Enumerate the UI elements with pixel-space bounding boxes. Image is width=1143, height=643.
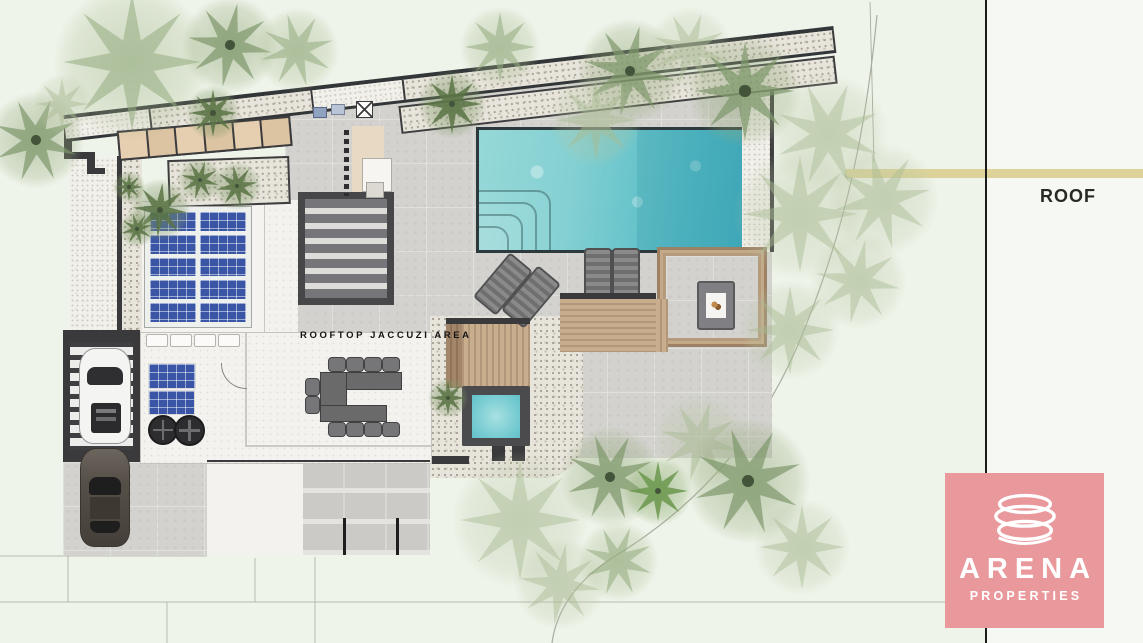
terrace-post bbox=[343, 518, 346, 555]
car-rear-window bbox=[91, 403, 121, 433]
car-roof bbox=[90, 497, 120, 519]
dining-chair bbox=[364, 357, 382, 372]
pergola-frame bbox=[657, 247, 767, 347]
wood-deck-side bbox=[656, 299, 668, 352]
pebble-strip bbox=[742, 92, 770, 252]
rooflight-box bbox=[313, 107, 327, 118]
planter-bench bbox=[194, 334, 216, 347]
car-windshield bbox=[87, 367, 123, 385]
fire-pit-inner bbox=[706, 293, 726, 318]
door-swing-arc bbox=[221, 363, 247, 389]
roof-label: ROOF bbox=[1040, 186, 1096, 207]
corner-wall-d bbox=[87, 168, 105, 174]
white-car bbox=[79, 348, 131, 444]
terrace-post bbox=[396, 518, 399, 555]
jacuzzi-water bbox=[472, 395, 520, 438]
car-rear-window bbox=[90, 521, 120, 533]
pool-deep-end bbox=[637, 130, 743, 250]
garden-wall-stub bbox=[431, 456, 469, 464]
dark-car bbox=[80, 448, 130, 547]
paved-terrace bbox=[303, 462, 430, 555]
side-gravel-strip bbox=[122, 158, 142, 338]
planter-bench bbox=[218, 334, 240, 347]
stacked-rings-icon bbox=[977, 489, 1073, 551]
stair-dot-beam bbox=[344, 130, 349, 196]
terrace-edge-wall bbox=[770, 90, 774, 252]
room-partition-line bbox=[245, 333, 247, 446]
roof-level-band bbox=[845, 169, 1143, 178]
swimming-pool bbox=[476, 127, 746, 253]
dining-chair bbox=[305, 378, 320, 396]
lower-terrace-concrete bbox=[560, 348, 772, 458]
rooflight-box bbox=[331, 104, 345, 115]
logo-tagline-text: PROPERTIES bbox=[967, 589, 1083, 603]
arena-properties-logo: ARENA PROPERTIES bbox=[945, 473, 1104, 628]
planted-gravel-bed bbox=[167, 156, 291, 208]
dining-table-bottom-arm bbox=[320, 405, 387, 422]
dining-chair bbox=[382, 357, 400, 372]
car-detail bbox=[96, 417, 116, 421]
dining-chair bbox=[382, 422, 400, 437]
logo-brand-text: ARENA bbox=[952, 553, 1097, 586]
fire-logs bbox=[711, 301, 721, 310]
planter-bench bbox=[170, 334, 192, 347]
wood-deck bbox=[560, 299, 656, 352]
stair-step bbox=[366, 182, 384, 198]
jacuzzi-area-label: ROOFTOP JACCUZI AREA bbox=[300, 330, 472, 341]
ac-fan-unit bbox=[174, 415, 205, 446]
dining-chair bbox=[328, 357, 346, 372]
pool-corner-step bbox=[479, 226, 509, 250]
planter-bench bbox=[146, 334, 168, 347]
small-solar-panel bbox=[148, 390, 195, 415]
deck-post bbox=[512, 446, 525, 461]
car-detail bbox=[96, 409, 116, 413]
dining-chair bbox=[305, 396, 320, 414]
lower-patio-white bbox=[207, 462, 303, 554]
dining-chair bbox=[328, 422, 346, 437]
dining-chair bbox=[346, 422, 364, 437]
walkway-wall bbox=[117, 156, 122, 344]
car-windshield bbox=[89, 477, 121, 495]
dining-chair bbox=[346, 357, 364, 372]
deck-post bbox=[492, 446, 505, 461]
roof-plan-canvas: ROOFTOP JACCUZI AREA ROOF ARENA PROPERTI… bbox=[0, 0, 1143, 643]
slatted-pergola-roof bbox=[298, 192, 394, 305]
hatch-box bbox=[356, 101, 373, 118]
side-walkway bbox=[70, 158, 117, 342]
dining-chair bbox=[364, 422, 382, 437]
terrace-edge-line bbox=[207, 460, 430, 462]
fire-pit bbox=[697, 281, 735, 330]
dining-set bbox=[296, 352, 406, 447]
solar-panel-array bbox=[144, 206, 252, 328]
jacuzzi-frame bbox=[462, 386, 530, 446]
small-solar-panel bbox=[148, 363, 196, 389]
